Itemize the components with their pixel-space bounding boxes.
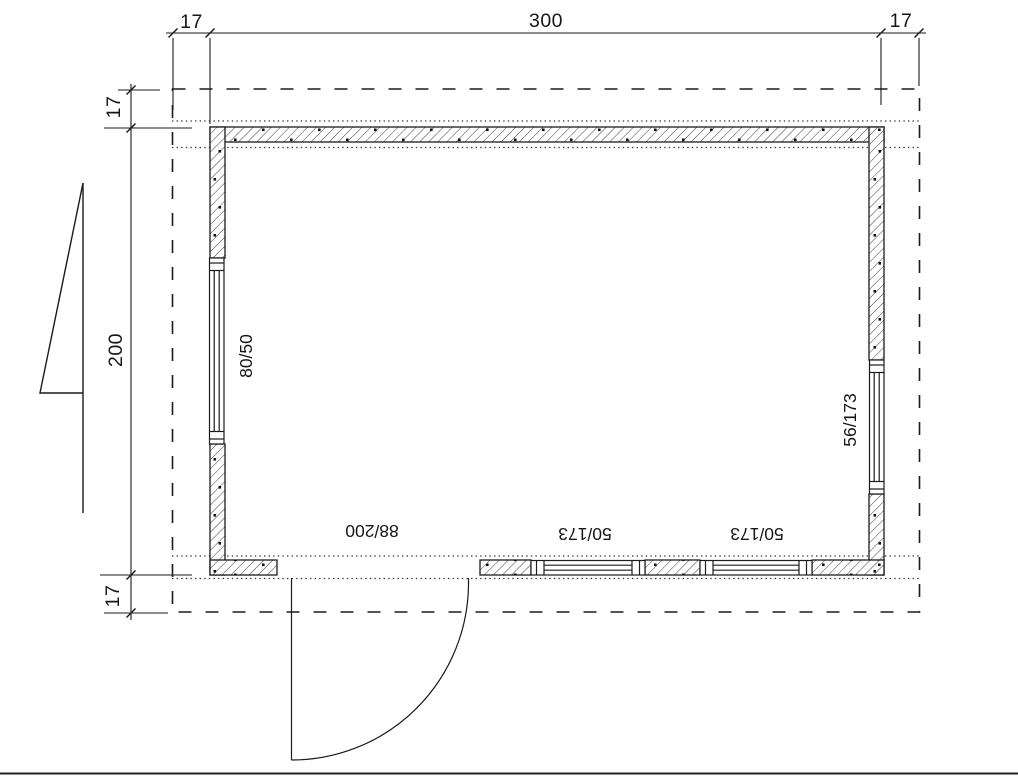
label-window-bottom-left-size: 50/173 (545, 523, 625, 545)
dimension-line-top (166, 29, 926, 125)
dim-label-height: 200 (105, 315, 127, 385)
dim-label-top-right-overhang: 17 (882, 10, 920, 33)
window-bottom-left-symbol (531, 561, 645, 576)
eave-dotted-lines (172, 121, 920, 579)
slope-direction-arrow (40, 183, 83, 513)
dim-label-width: 300 (486, 10, 606, 33)
window-left-symbol (210, 258, 225, 444)
window-right-symbol (870, 360, 885, 494)
label-window-left-size: 80/50 (235, 316, 257, 396)
window-bottom-right-symbol (700, 561, 812, 576)
label-window-bottom-right-size: 50/173 (717, 523, 797, 545)
door-arc (292, 583, 469, 760)
dim-label-left-bottom-overhang: 17 (102, 561, 124, 631)
label-window-right-size: 56/173 (839, 380, 861, 460)
drawing-canvas[interactable]: 17 300 17 17 200 17 80/50 56/173 88/200 … (0, 0, 1018, 784)
door-swing (292, 578, 469, 760)
label-door-size: 88/200 (327, 520, 417, 542)
floor-plan-linework (0, 0, 1018, 784)
dim-label-left-top-overhang: 17 (103, 72, 125, 142)
wall-fastener-dots (210, 127, 884, 575)
dim-label-top-left-overhang: 17 (173, 11, 210, 34)
walls-hatched (210, 127, 884, 575)
